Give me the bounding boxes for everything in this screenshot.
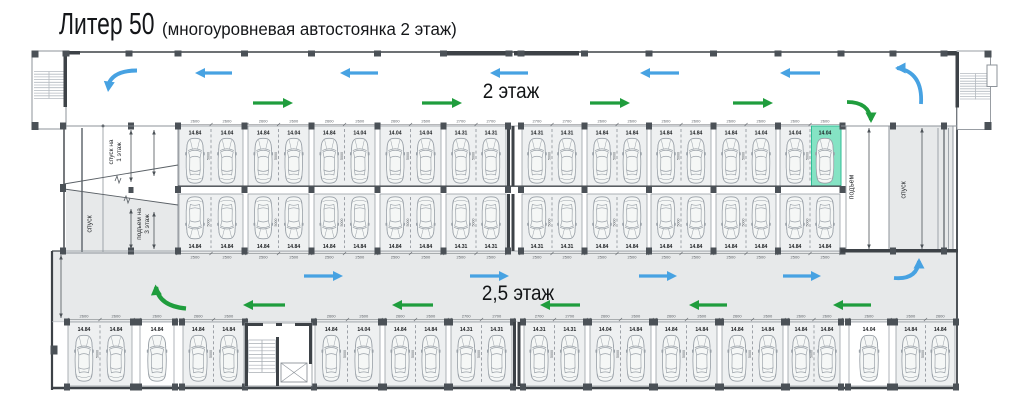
svg-text:5000: 5000: [806, 219, 810, 227]
svg-text:2600: 2600: [757, 119, 767, 124]
svg-text:2700: 2700: [533, 119, 543, 124]
svg-text:Литер 50: Литер 50: [59, 6, 154, 41]
svg-text:14.84: 14.84: [189, 244, 202, 250]
svg-text:2600: 2600: [191, 119, 201, 124]
svg-text:5000: 5000: [677, 219, 681, 227]
svg-text:14.84: 14.84: [222, 327, 235, 333]
svg-text:14.84: 14.84: [389, 244, 402, 250]
svg-text:2600: 2600: [865, 314, 875, 319]
svg-text:14.84: 14.84: [596, 131, 609, 137]
svg-text:2600: 2600: [821, 119, 831, 124]
svg-text:2600: 2600: [325, 119, 335, 124]
svg-text:1 этаж: 1 этаж: [116, 142, 123, 162]
svg-text:2600: 2600: [359, 314, 369, 319]
svg-text:2700: 2700: [535, 314, 545, 319]
svg-text:5000: 5000: [742, 152, 746, 160]
svg-text:2600: 2600: [223, 119, 233, 124]
svg-text:14.84: 14.84: [596, 244, 609, 250]
svg-text:14.04: 14.04: [599, 327, 612, 333]
svg-text:14.84: 14.84: [725, 244, 738, 250]
svg-text:14.84: 14.84: [904, 327, 917, 333]
svg-text:2500: 2500: [757, 255, 767, 260]
svg-text:2700: 2700: [457, 119, 467, 124]
svg-text:14.84: 14.84: [665, 327, 678, 333]
svg-text:14.84: 14.84: [660, 244, 673, 250]
svg-text:14.84: 14.84: [424, 327, 437, 333]
svg-text:14.04: 14.04: [389, 131, 402, 137]
svg-text:14.84: 14.84: [323, 131, 336, 137]
svg-text:2600: 2600: [396, 314, 406, 319]
svg-text:14.84: 14.84: [110, 327, 123, 333]
svg-text:14.84: 14.84: [257, 244, 270, 250]
svg-text:2600: 2600: [667, 314, 677, 319]
svg-text:2600: 2600: [259, 119, 269, 124]
svg-text:2600: 2600: [791, 119, 801, 124]
svg-text:14.84: 14.84: [221, 244, 234, 250]
svg-text:14.31: 14.31: [561, 244, 574, 250]
svg-text:2600: 2600: [224, 314, 234, 319]
svg-text:14.84: 14.84: [394, 327, 407, 333]
svg-text:2500: 2500: [421, 255, 431, 260]
svg-text:5000: 5000: [209, 350, 213, 358]
svg-text:14.04: 14.04: [357, 327, 370, 333]
svg-text:2600: 2600: [628, 119, 638, 124]
svg-text:спуск на: спуск на: [108, 139, 115, 164]
svg-text:14.31: 14.31: [485, 244, 498, 250]
svg-text:5000: 5000: [472, 219, 476, 227]
svg-text:14.04: 14.04: [789, 131, 802, 137]
svg-text:2600: 2600: [289, 119, 299, 124]
svg-text:5000: 5000: [677, 152, 681, 160]
svg-text:2600: 2600: [936, 314, 946, 319]
svg-text:14.84: 14.84: [789, 244, 802, 250]
svg-text:2600: 2600: [697, 314, 707, 319]
svg-text:5000: 5000: [613, 152, 617, 160]
svg-text:5000: 5000: [406, 152, 410, 160]
svg-text:2600: 2600: [598, 119, 608, 124]
svg-text:14.84: 14.84: [819, 244, 832, 250]
svg-text:спуск: спуск: [87, 214, 94, 232]
svg-text:5000: 5000: [616, 350, 620, 358]
svg-text:14.31: 14.31: [490, 327, 503, 333]
svg-text:14.84: 14.84: [323, 244, 336, 250]
svg-text:2500: 2500: [355, 255, 365, 260]
svg-text:5000: 5000: [340, 152, 344, 160]
svg-text:2500: 2500: [628, 255, 638, 260]
svg-text:14.84: 14.84: [257, 131, 270, 137]
svg-text:2500: 2500: [191, 255, 201, 260]
svg-text:14.31: 14.31: [533, 327, 546, 333]
svg-text:14.31: 14.31: [561, 131, 574, 137]
svg-text:5000: 5000: [548, 152, 552, 160]
svg-text:2600: 2600: [631, 314, 641, 319]
svg-text:2500: 2500: [563, 255, 573, 260]
svg-text:5000: 5000: [550, 350, 554, 358]
svg-text:2500: 2500: [692, 255, 702, 260]
svg-text:14.31: 14.31: [531, 244, 544, 250]
svg-text:2600: 2600: [692, 119, 702, 124]
svg-text:14.04: 14.04: [863, 327, 876, 333]
svg-text:2700: 2700: [487, 119, 497, 124]
svg-text:14.31: 14.31: [455, 131, 468, 137]
svg-text:5000: 5000: [682, 350, 686, 358]
svg-text:2500: 2500: [457, 255, 467, 260]
svg-text:2500: 2500: [289, 255, 299, 260]
svg-text:14.84: 14.84: [419, 244, 432, 250]
svg-text:14.31: 14.31: [563, 327, 576, 333]
svg-text:2600: 2600: [662, 119, 672, 124]
svg-text:2600: 2600: [355, 119, 365, 124]
svg-text:5000: 5000: [96, 350, 100, 358]
svg-text:14.84: 14.84: [151, 327, 164, 333]
svg-text:5000: 5000: [472, 152, 476, 160]
svg-text:14.84: 14.84: [795, 327, 808, 333]
svg-text:14.84: 14.84: [695, 327, 708, 333]
svg-text:2600: 2600: [391, 119, 401, 124]
svg-text:5000: 5000: [548, 219, 552, 227]
svg-text:14.84: 14.84: [755, 244, 768, 250]
svg-text:2600: 2600: [194, 314, 204, 319]
svg-text:(многоуровневая автостоянка 2: (многоуровневая автостоянка 2 этаж): [162, 19, 457, 40]
svg-text:14.04: 14.04: [353, 131, 366, 137]
svg-text:14.84: 14.84: [353, 244, 366, 250]
svg-text:14.84: 14.84: [189, 131, 202, 137]
svg-text:2500: 2500: [223, 255, 233, 260]
svg-text:14.84: 14.84: [725, 131, 738, 137]
svg-text:5000: 5000: [806, 152, 810, 160]
svg-text:14.84: 14.84: [192, 327, 205, 333]
svg-text:2500: 2500: [533, 255, 543, 260]
svg-text:2500: 2500: [391, 255, 401, 260]
svg-text:2600: 2600: [426, 314, 436, 319]
svg-text:2500: 2500: [727, 255, 737, 260]
svg-text:14.84: 14.84: [78, 327, 91, 333]
svg-text:2500: 2500: [821, 255, 831, 260]
svg-text:2600: 2600: [727, 119, 737, 124]
svg-text:5000: 5000: [274, 152, 278, 160]
svg-text:3 этаж: 3 этаж: [144, 214, 151, 234]
svg-text:5000: 5000: [207, 152, 211, 160]
svg-text:2600: 2600: [797, 314, 807, 319]
svg-text:5000: 5000: [411, 350, 415, 358]
svg-text:2700: 2700: [565, 314, 575, 319]
svg-text:2600: 2600: [601, 314, 611, 319]
svg-text:2600: 2600: [823, 314, 833, 319]
svg-text:2500: 2500: [662, 255, 672, 260]
svg-text:2600: 2600: [80, 314, 90, 319]
svg-text:2500: 2500: [259, 255, 269, 260]
svg-text:5000: 5000: [343, 350, 347, 358]
svg-text:2600: 2600: [763, 314, 773, 319]
svg-text:14.84: 14.84: [731, 327, 744, 333]
svg-text:подъем на: подъем на: [136, 208, 143, 240]
svg-text:14.31: 14.31: [455, 244, 468, 250]
svg-text:14.04: 14.04: [419, 131, 432, 137]
svg-text:14.84: 14.84: [626, 131, 639, 137]
svg-text:2,5 этаж: 2,5 этаж: [482, 282, 555, 305]
svg-text:2600: 2600: [421, 119, 431, 124]
svg-text:2600: 2600: [153, 314, 163, 319]
svg-text:5000: 5000: [613, 219, 617, 227]
svg-text:14.31: 14.31: [460, 327, 473, 333]
svg-text:14.84: 14.84: [690, 131, 703, 137]
svg-text:5000: 5000: [340, 219, 344, 227]
svg-text:2600: 2600: [906, 314, 916, 319]
svg-text:5000: 5000: [274, 219, 278, 227]
svg-text:2700: 2700: [492, 314, 502, 319]
svg-text:2600: 2600: [733, 314, 743, 319]
svg-text:14.84: 14.84: [626, 244, 639, 250]
svg-text:14.84: 14.84: [325, 327, 338, 333]
svg-text:2500: 2500: [325, 255, 335, 260]
svg-text:14.31: 14.31: [485, 131, 498, 137]
svg-text:2500: 2500: [791, 255, 801, 260]
svg-text:2700: 2700: [563, 119, 573, 124]
svg-text:5000: 5000: [921, 350, 925, 358]
svg-text:5000: 5000: [748, 350, 752, 358]
svg-text:5000: 5000: [742, 219, 746, 227]
svg-text:14.84: 14.84: [821, 327, 834, 333]
svg-text:подъем: подъем: [849, 175, 856, 200]
svg-text:5000: 5000: [207, 219, 211, 227]
svg-text:14.04: 14.04: [221, 131, 234, 137]
svg-text:2500: 2500: [487, 255, 497, 260]
svg-text:14.04: 14.04: [819, 131, 832, 137]
svg-text:14.31: 14.31: [531, 131, 544, 137]
svg-text:2700: 2700: [462, 314, 472, 319]
svg-text:14.84: 14.84: [934, 327, 947, 333]
svg-text:5000: 5000: [406, 219, 410, 227]
svg-text:14.84: 14.84: [690, 244, 703, 250]
svg-text:2600: 2600: [112, 314, 122, 319]
svg-text:14.84: 14.84: [287, 244, 300, 250]
svg-text:14.84: 14.84: [660, 131, 673, 137]
svg-text:2 этаж: 2 этаж: [483, 80, 540, 103]
svg-text:2600: 2600: [327, 314, 337, 319]
svg-text:спуск: спуск: [901, 180, 908, 198]
svg-text:14.04: 14.04: [755, 131, 768, 137]
svg-text:14.84: 14.84: [629, 327, 642, 333]
svg-text:5000: 5000: [477, 350, 481, 358]
svg-text:2500: 2500: [598, 255, 608, 260]
svg-text:14.84: 14.84: [761, 327, 774, 333]
svg-text:14.04: 14.04: [287, 131, 300, 137]
